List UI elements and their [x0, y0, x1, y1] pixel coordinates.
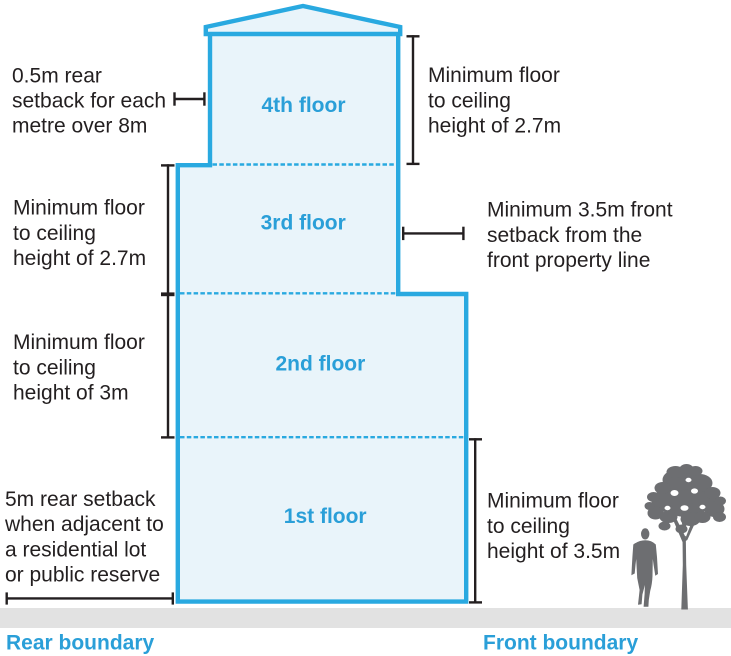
svg-text:5m rear setbackwhen adjacent t: 5m rear setbackwhen adjacent toa residen… — [4, 488, 164, 587]
svg-text:Minimum floorto ceilingheight: Minimum floorto ceilingheight of 3m — [13, 331, 145, 404]
svg-text:Minimum floorto ceilingheight: Minimum floorto ceilingheight of 2.7m — [428, 64, 561, 137]
svg-text:Minimum floorto ceilingheight: Minimum floorto ceilingheight of 3.5m — [487, 490, 620, 563]
svg-text:3rd floor: 3rd floor — [261, 212, 346, 235]
svg-text:0.5m rearsetback for eachmetre: 0.5m rearsetback for eachmetre over 8m — [12, 64, 166, 137]
svg-text:4th floor: 4th floor — [262, 94, 346, 117]
svg-text:Minimum 3.5m frontsetback from: Minimum 3.5m frontsetback from thefront … — [487, 199, 673, 272]
svg-text:Rear boundary: Rear boundary — [6, 632, 155, 655]
svg-text:2nd floor: 2nd floor — [275, 353, 365, 376]
svg-text:Minimum floorto ceilingheight: Minimum floorto ceilingheight of 2.7m — [13, 197, 146, 270]
svg-text:1st floor: 1st floor — [284, 505, 367, 528]
svg-text:Front boundary: Front boundary — [483, 632, 638, 655]
